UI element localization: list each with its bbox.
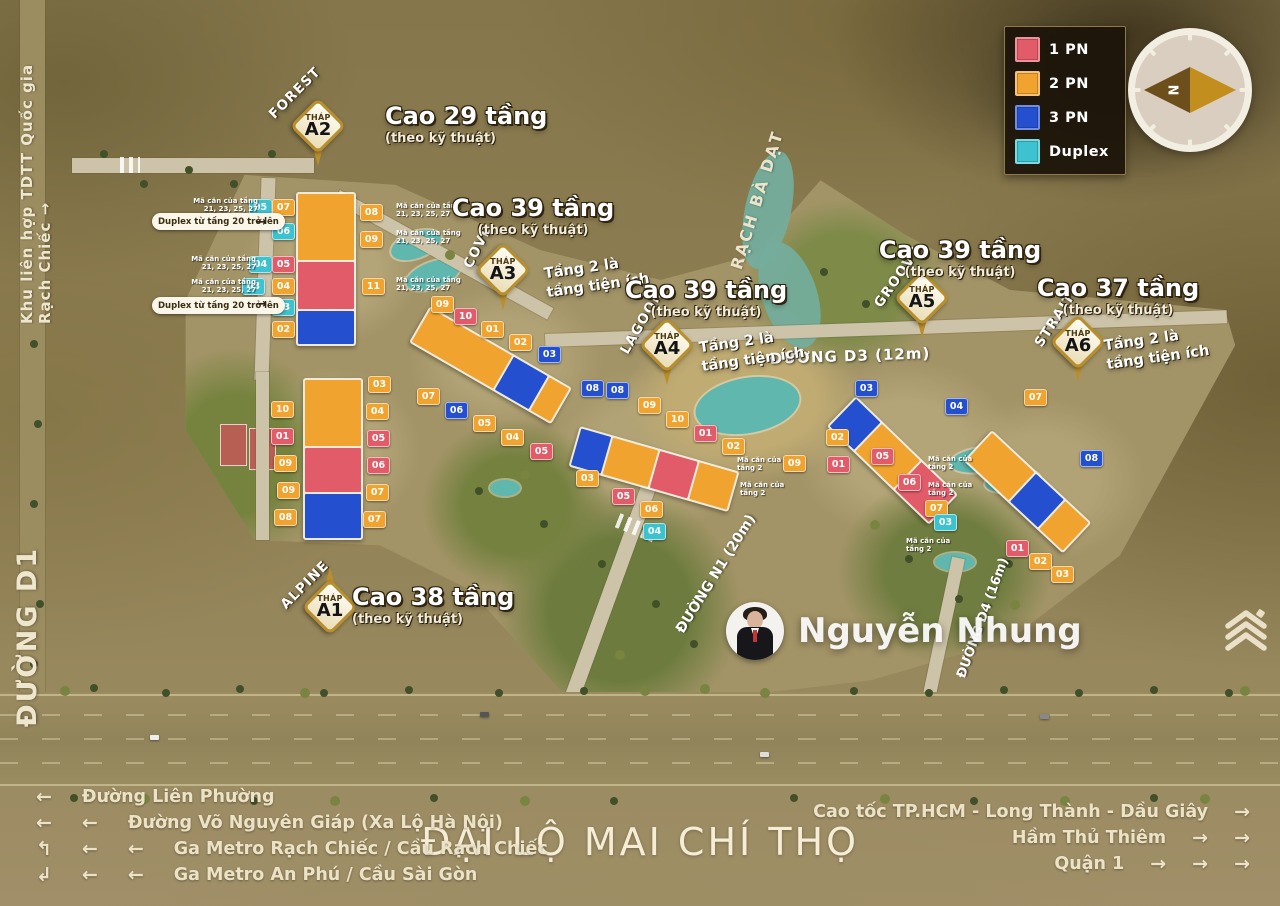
legend-swatch-1pn [1015,37,1040,62]
compass-north-letter: N [1168,85,1183,96]
legend-row-1pn: 1 PN [1015,37,1115,62]
direction-row-quan-1: Quận 1 → → → [1054,853,1250,875]
tower-height-main: Cao 39 tầng [625,276,787,304]
unit-badge-04: 04 [945,398,968,415]
unit-badge-05: 05 [473,415,496,432]
pin-label: THÁP A5 [899,275,945,321]
tower-height-main: Cao 29 tầng [385,102,547,130]
road-label-d1: ĐƯỜNG D1 [12,542,43,727]
pin-code-text: A3 [490,265,516,283]
unit-floor-note: Mã căn của tầng21, 23, 25, 27 [191,255,256,272]
agent-avatar [726,602,784,660]
unit-badge-01: 01 [271,428,294,445]
legend-label: 3 PN [1049,110,1089,126]
pin-code-text: A6 [1065,337,1091,355]
direction-label: Quận 1 [1054,854,1124,874]
tower-height-sub: (theo kỹ thuật) [625,305,787,320]
unit-badge-02: 02 [826,429,849,446]
unit-badge-01: 01 [481,321,504,338]
unit-badge-09: 09 [431,296,454,313]
direction-label: Đường Liên Phường [82,787,275,807]
unit-floor-note-line: Mã căn của tầng [191,255,256,263]
pin-label: THÁP A6 [1055,319,1101,365]
arrow-right-icon: → [256,215,267,230]
unit-badge-05: 05 [871,448,894,465]
unit-badge-03: 03 [576,470,599,487]
unit-floor-note: Mã căn của tầng21, 23, 25, 27 [396,276,461,293]
unit-badge-07: 07 [366,484,389,501]
pin-code-text: A1 [317,602,343,620]
unit-badge-09: 09 [783,455,806,472]
tower-height-sub: (theo kỹ thuật) [879,265,1041,280]
unit-badge-03: 03 [1051,566,1074,583]
direction-row-metro-an-phu: ↲ ← ← Ga Metro An Phú / Cầu Sài Gòn [36,864,477,886]
unit-floor-note-line: tầng 2 [928,463,972,471]
unit-badge-07: 07 [363,511,386,528]
pin-label: THÁP A2 [295,103,341,149]
direction-label: Hầm Thủ Thiêm [1012,828,1166,848]
unit-badge-06: 06 [640,501,663,518]
direction-label: Ga Metro An Phú / Cầu Sài Gòn [174,865,478,885]
unit-badge-04: 04 [272,278,295,295]
unit-floor-note: Mã căn củatầng 2 [928,455,972,472]
pin-code-text: A2 [305,121,331,139]
direction-row-lien-phuong: ← Đường Liên Phường [36,786,274,808]
unit-floor-note-line: Mã căn của tầng [191,278,256,286]
unit-badge-09: 09 [274,455,297,472]
unit-badge-02: 02 [1029,553,1052,570]
tower-height: Cao 39 tầng (theo kỹ thuật) [625,276,787,320]
arrow-right-icon: → [256,297,267,312]
unit-badge-06: 06 [898,474,921,491]
unit-badge-01: 01 [1006,540,1029,557]
legend-row-duplex: Duplex [1015,139,1115,164]
arrow-turn-down-icon: ↲ [36,864,52,886]
unit-floor-note: Mã căn củatầng 2 [928,481,972,498]
unit-floor-note-line: tầng 2 [740,489,784,497]
arrow-left-icon: ← [128,838,144,860]
arrow-turn-up-icon: ↰ [36,838,52,860]
unit-badge-04: 04 [366,403,389,420]
unit-badge-05: 05 [367,430,390,447]
pin-label: THÁP A3 [480,247,526,293]
unit-badge-07: 07 [417,388,440,405]
unit-badge-03: 03 [368,376,391,393]
masterplan-map: 0507060405030403020809111001090908030405… [0,0,1280,906]
legend-label: Duplex [1049,144,1109,160]
compass-tick [1132,88,1141,92]
arrow-left-icon: ← [82,864,98,886]
direction-row-ham-thu-thiem: Hầm Thủ Thiêm → → [1012,827,1250,849]
unit-badge-10: 10 [666,411,689,428]
roof-chevrons-icon [1218,602,1274,658]
agent-name: Nguyễn Nhung [798,611,1082,651]
tower-height-main: Cao 39 tầng [452,194,614,222]
unit-badge-10: 10 [454,308,477,325]
tower-height: Cao 39 tầng (theo kỹ thuật) [879,236,1041,280]
unit-badge-09: 09 [638,397,661,414]
unit-badge-09: 09 [360,231,383,248]
unit-badge-04: 04 [643,523,666,540]
unit-floor-note: Mã căn củatầng 2 [740,481,784,498]
avatar-tie [753,630,757,642]
unit-badge-11: 11 [362,278,385,295]
pin-code-text: A4 [654,340,680,358]
agent-signature: Nguyễn Nhung [726,602,1082,660]
unit-badge-05: 05 [272,256,295,273]
tower-pin: THÁP A2 [295,103,341,149]
direction-label: Cao tốc TP.HCM - Long Thành - Dầu Giây [813,802,1208,822]
unit-badge-08: 08 [274,509,297,526]
unit-floor-note-line: Mã căn của tầng [396,276,461,284]
edge-label-sports-complex: Khu liên hợp TDTT Quốc gia Rạch Chiếc → [18,24,54,324]
unit-badge-05: 05 [612,488,635,505]
unit-badge-02: 02 [722,438,745,455]
tower-height: Cao 39 tầng (theo kỹ thuật) [452,194,614,238]
unit-badge-05: 05 [530,443,553,460]
unit-badge-03: 03 [934,514,957,531]
unit-badge-09: 09 [277,482,300,499]
direction-label: Đường Võ Nguyên Giáp (Xa Lộ Hà Nội) [128,813,503,833]
compass-tick [1188,32,1192,41]
tower-height-main: Cao 37 tầng [1037,274,1199,302]
unit-floor-note-line: 21, 23, 25, 27 [191,286,256,294]
unit-floor-note-line: tầng 2 [906,545,950,553]
direction-label: Ga Metro Rạch Chiếc / Cầu Rạch Chiếc [174,839,548,859]
legend-label: 2 PN [1049,76,1089,92]
arrow-left-icon: ← [128,864,144,886]
legend-label: 1 PN [1049,42,1089,58]
unit-badge-06: 06 [445,402,468,419]
arrow-left-icon: ← [82,812,98,834]
unit-floor-note: Mã căn củatầng 2 [906,537,950,554]
unit-badge-08: 08 [1080,450,1103,467]
legend-swatch-3pn [1015,105,1040,130]
brand-roof-logo [1218,602,1274,662]
arrow-right-icon: → [1234,827,1250,849]
arrow-left-icon: ← [36,812,52,834]
unit-badge-03: 03 [538,346,561,363]
tower-height-main: Cao 39 tầng [879,236,1041,264]
unit-badge-08: 08 [581,380,604,397]
unit-badge-08: 08 [360,204,383,221]
legend-swatch-duplex [1015,139,1040,164]
tower-height: Cao 37 tầng (theo kỹ thuật) [1037,274,1199,318]
legend-swatch-2pn [1015,71,1040,96]
unit-badge-02: 02 [272,321,295,338]
arrow-right-icon: → [1192,853,1208,875]
tower-height-main: Cao 38 tầng [352,583,514,611]
arrow-right-icon: → [1150,853,1166,875]
arrow-right-icon: → [1234,853,1250,875]
unit-floor-note: Mã căn của tầng21, 23, 25, 27 [191,278,256,295]
unit-floor-note: Mã căn củatầng 2 [737,456,781,473]
compass-tick [1240,88,1249,92]
legend-row-2pn: 2 PN [1015,71,1115,96]
compass-tick [1188,140,1192,149]
direction-row-metro-rach-chiec: ↰ ← ← Ga Metro Rạch Chiếc / Cầu Rạch Chi… [36,838,548,860]
tower-height-sub: (theo kỹ thuật) [452,223,614,238]
pin-label: THÁP A1 [307,584,353,630]
unit-badge-03: 03 [855,380,878,397]
compass-needle: N [1144,67,1236,113]
unit-badge-01: 01 [694,425,717,442]
tower-pin: THÁP A5 [899,275,945,321]
arrow-left-icon: ← [82,838,98,860]
arrow-left-icon: ← [36,786,52,808]
unit-badge-07: 07 [1024,389,1047,406]
unit-floor-note-line: tầng 2 [928,489,972,497]
unit-floor-note-line: 21, 23, 25, 27 [396,237,461,245]
legend-row-3pn: 3 PN [1015,105,1115,130]
tower-pin: THÁP A4 [644,322,690,368]
unit-floor-note-line: Mã căn của tầng [193,197,258,205]
tower-pin: THÁP A6 [1055,319,1101,365]
tower-height: Cao 29 tầng (theo kỹ thuật) [385,102,547,146]
tower-height: Cao 38 tầng (theo kỹ thuật) [352,583,514,627]
tower-pin: THÁP A3 [480,247,526,293]
unit-badge-10: 10 [271,401,294,418]
pin-label: THÁP A4 [644,322,690,368]
unit-badge-08: 08 [606,382,629,399]
arrow-right-icon: → [1192,827,1208,849]
tower-height-sub: (theo kỹ thuật) [385,131,547,146]
unit-floor-note: Mã căn của tầng21, 23, 25, 27 [193,197,258,214]
tower-height-sub: (theo kỹ thuật) [1037,303,1199,318]
pin-code-text: A5 [909,293,935,311]
unit-badge-06: 06 [367,457,390,474]
unit-floor-note-line: tầng 2 [737,464,781,472]
unit-badge-01: 01 [827,456,850,473]
tower-height-sub: (theo kỹ thuật) [352,612,514,627]
arrow-right-icon: → [1234,801,1250,823]
tower-pin: THÁP A1 [307,584,353,630]
unit-floor-note-line: 21, 23, 25, 27 [191,263,256,271]
direction-row-cao-toc: Cao tốc TP.HCM - Long Thành - Dầu Giây → [813,801,1250,823]
unit-badge-02: 02 [509,334,532,351]
unit-badge-04: 04 [501,429,524,446]
unit-floor-note-line: 21, 23, 25, 27 [396,284,461,292]
compass: N [1128,28,1252,152]
legend: 1 PN 2 PN 3 PN Duplex [1004,26,1126,175]
direction-row-vo-nguyen-giap: ← ← Đường Võ Nguyên Giáp (Xa Lộ Hà Nội) [36,812,503,834]
